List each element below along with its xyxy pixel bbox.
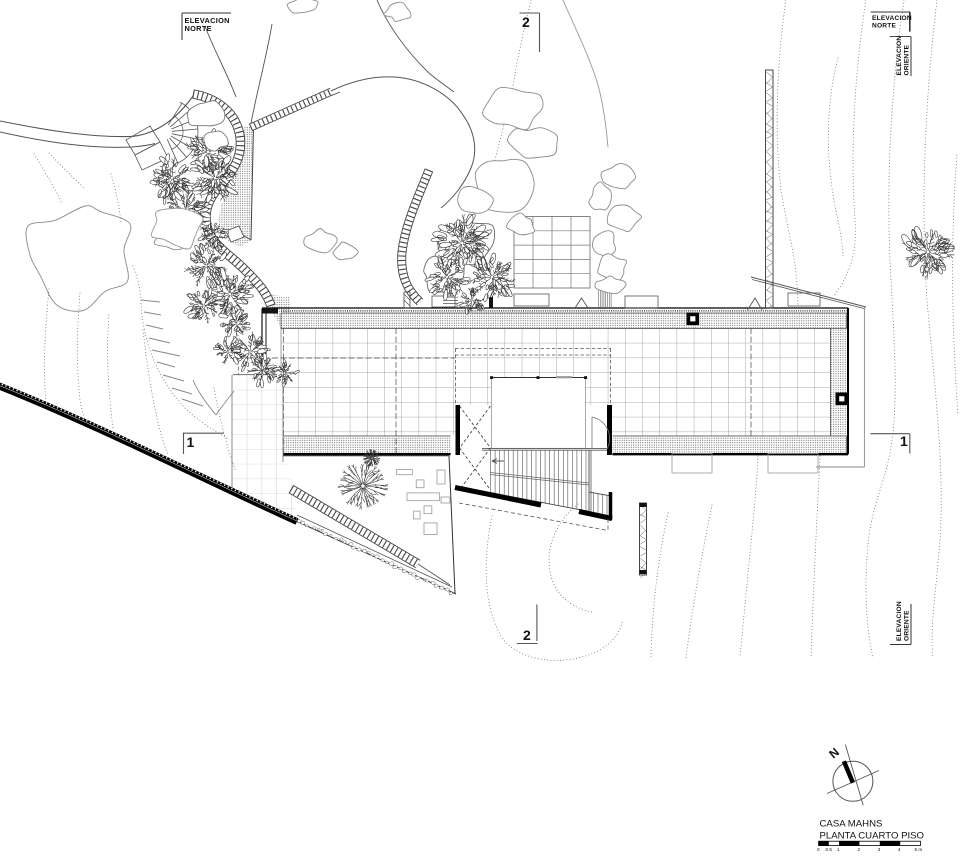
svg-text:1: 1 (187, 434, 195, 450)
svg-text:NORTE: NORTE (872, 23, 896, 30)
svg-text:NORTE: NORTE (185, 24, 212, 33)
svg-text:PLANTA CUARTO PISO: PLANTA CUARTO PISO (820, 830, 925, 841)
svg-text:ELEVACION: ELEVACION (896, 601, 903, 641)
svg-text:2: 2 (858, 847, 861, 852)
svg-text:ORIENTE: ORIENTE (903, 44, 910, 75)
svg-text:1: 1 (837, 847, 840, 852)
svg-text:2: 2 (522, 14, 530, 30)
svg-text:1: 1 (900, 433, 908, 449)
svg-text:5 m: 5 m (915, 847, 923, 852)
svg-text:4: 4 (898, 847, 901, 852)
svg-text:3: 3 (878, 847, 881, 852)
svg-text:ELEVACION: ELEVACION (872, 15, 912, 22)
svg-text:ELEVACION: ELEVACION (896, 36, 903, 76)
svg-text:0: 0 (817, 847, 820, 852)
svg-text:CASA MAHNS: CASA MAHNS (820, 819, 883, 830)
svg-text:ORIENTE: ORIENTE (903, 610, 910, 641)
svg-text:0.5: 0.5 (826, 847, 833, 852)
svg-text:2: 2 (523, 627, 531, 643)
